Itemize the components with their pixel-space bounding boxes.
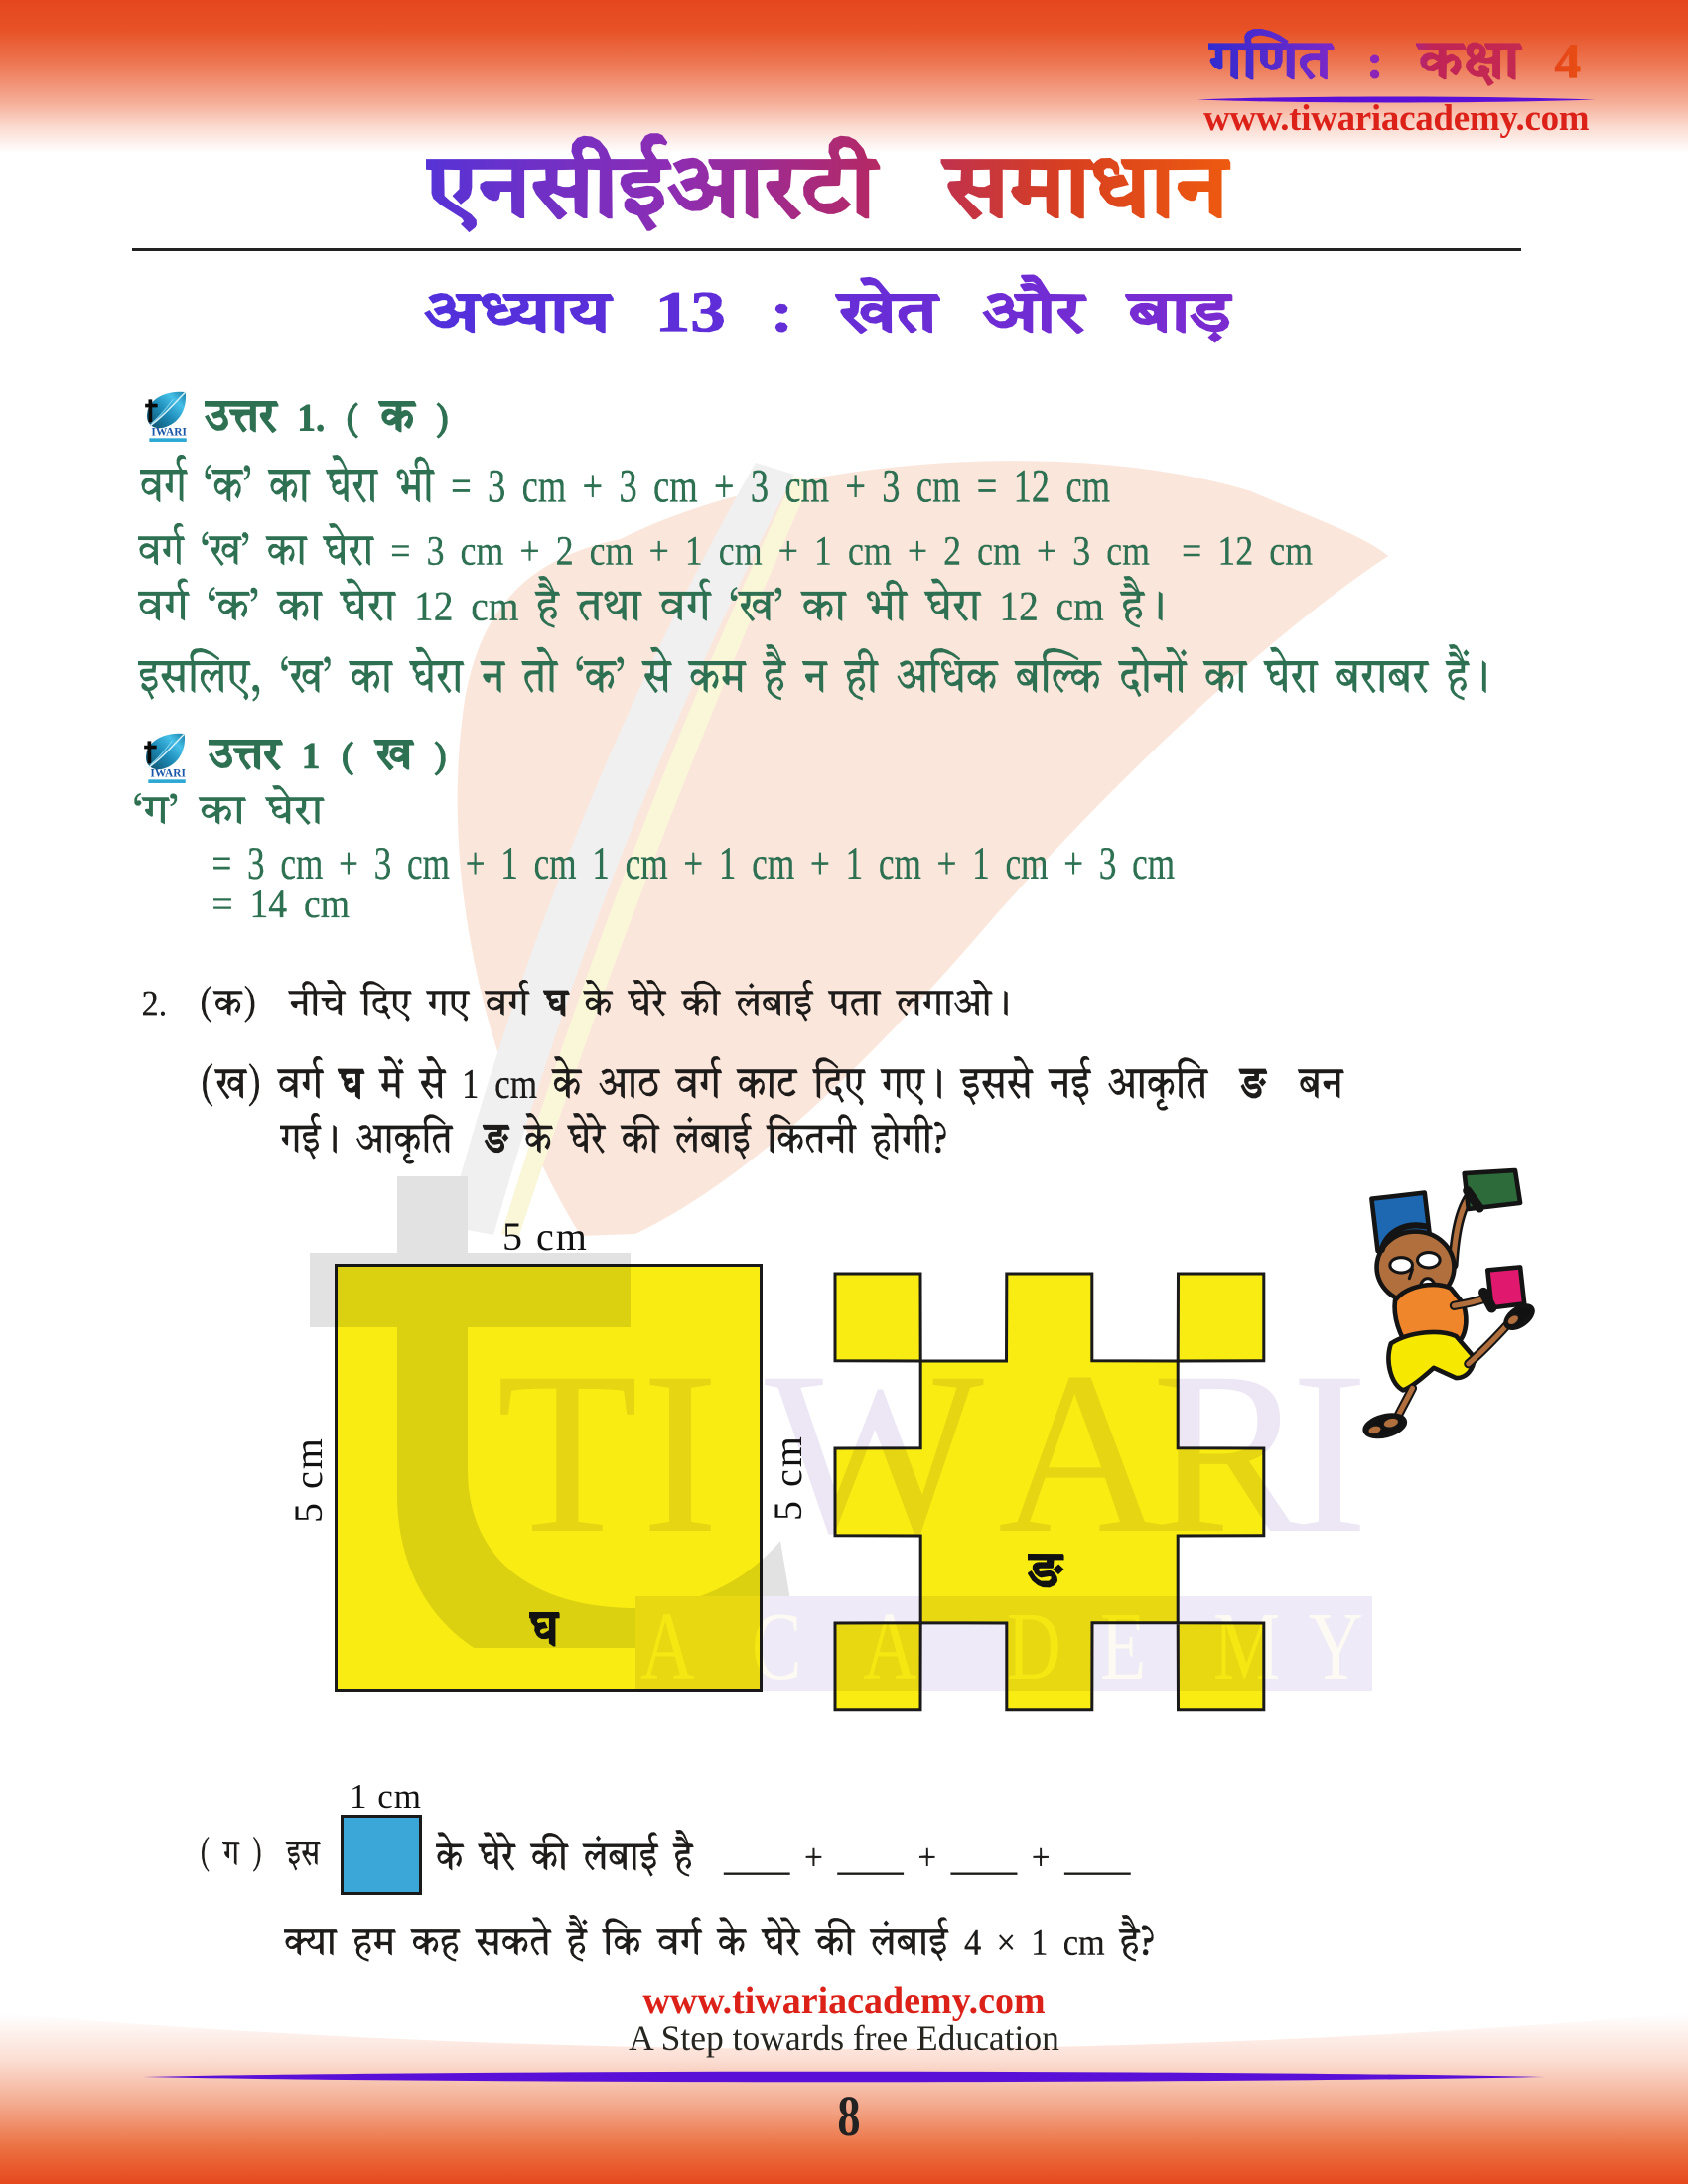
- svg-text:IWARI: IWARI: [150, 768, 186, 780]
- svg-text:IWARI: IWARI: [151, 427, 187, 439]
